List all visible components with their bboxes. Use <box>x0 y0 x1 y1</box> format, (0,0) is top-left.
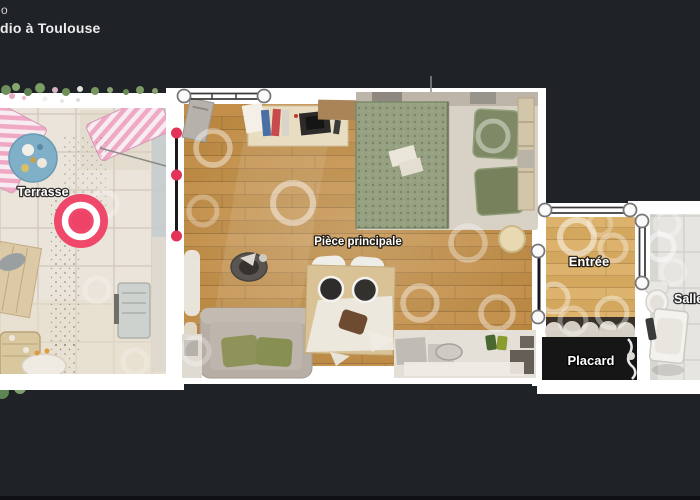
sink-shadow <box>652 364 684 376</box>
room-label-piece-principale: Pièce principale <box>314 236 402 248</box>
sofa-cushion <box>255 337 293 367</box>
plate <box>353 278 377 302</box>
floorplan-viewer: o dio à Toulouse <box>0 0 700 500</box>
pillow <box>474 166 523 215</box>
floorplan-svg: Terrasse Pièce principale Entrée Placard… <box>0 0 700 500</box>
window-node-dot[interactable] <box>171 231 182 242</box>
dining-set <box>305 255 395 366</box>
bottle <box>496 336 507 351</box>
room-label-entree: Entrée <box>569 254 609 269</box>
pouf <box>499 226 525 252</box>
header: o dio à Toulouse <box>0 3 101 36</box>
plate <box>319 277 343 301</box>
stool <box>231 253 267 281</box>
wall-node[interactable] <box>636 215 649 228</box>
sofa-cushion <box>221 334 260 368</box>
terrace-table <box>9 134 57 182</box>
bottle <box>485 334 497 350</box>
window-node-dot[interactable] <box>171 170 182 181</box>
brand-text-fragment: o <box>0 3 101 17</box>
wall-node[interactable] <box>532 311 545 324</box>
wall-node[interactable] <box>178 90 191 103</box>
curtain <box>184 250 200 316</box>
bed <box>356 92 538 230</box>
position-marker[interactable] <box>54 194 108 248</box>
wall-node[interactable] <box>532 245 545 258</box>
room-label-placard: Placard <box>568 353 615 368</box>
terrasse-side-strip <box>152 237 168 372</box>
wall-node[interactable] <box>539 204 552 217</box>
placard-mess <box>627 352 635 360</box>
wall-bottom-right <box>537 380 700 394</box>
ac-unit <box>114 283 150 338</box>
wall-node[interactable] <box>258 90 271 103</box>
room-label-salle: Salle <box>674 292 700 306</box>
window-node-dot[interactable] <box>171 128 182 139</box>
wall-terrace-bottom <box>0 374 172 390</box>
wall-node[interactable] <box>624 204 637 217</box>
listing-title: dio à Toulouse <box>0 20 101 36</box>
sofa <box>200 308 312 378</box>
sink <box>436 344 462 360</box>
bottom-edge <box>0 496 700 500</box>
wall-node[interactable] <box>636 277 649 290</box>
room-label-terrasse: Terrasse <box>17 185 68 199</box>
wardrobe <box>518 98 534 210</box>
